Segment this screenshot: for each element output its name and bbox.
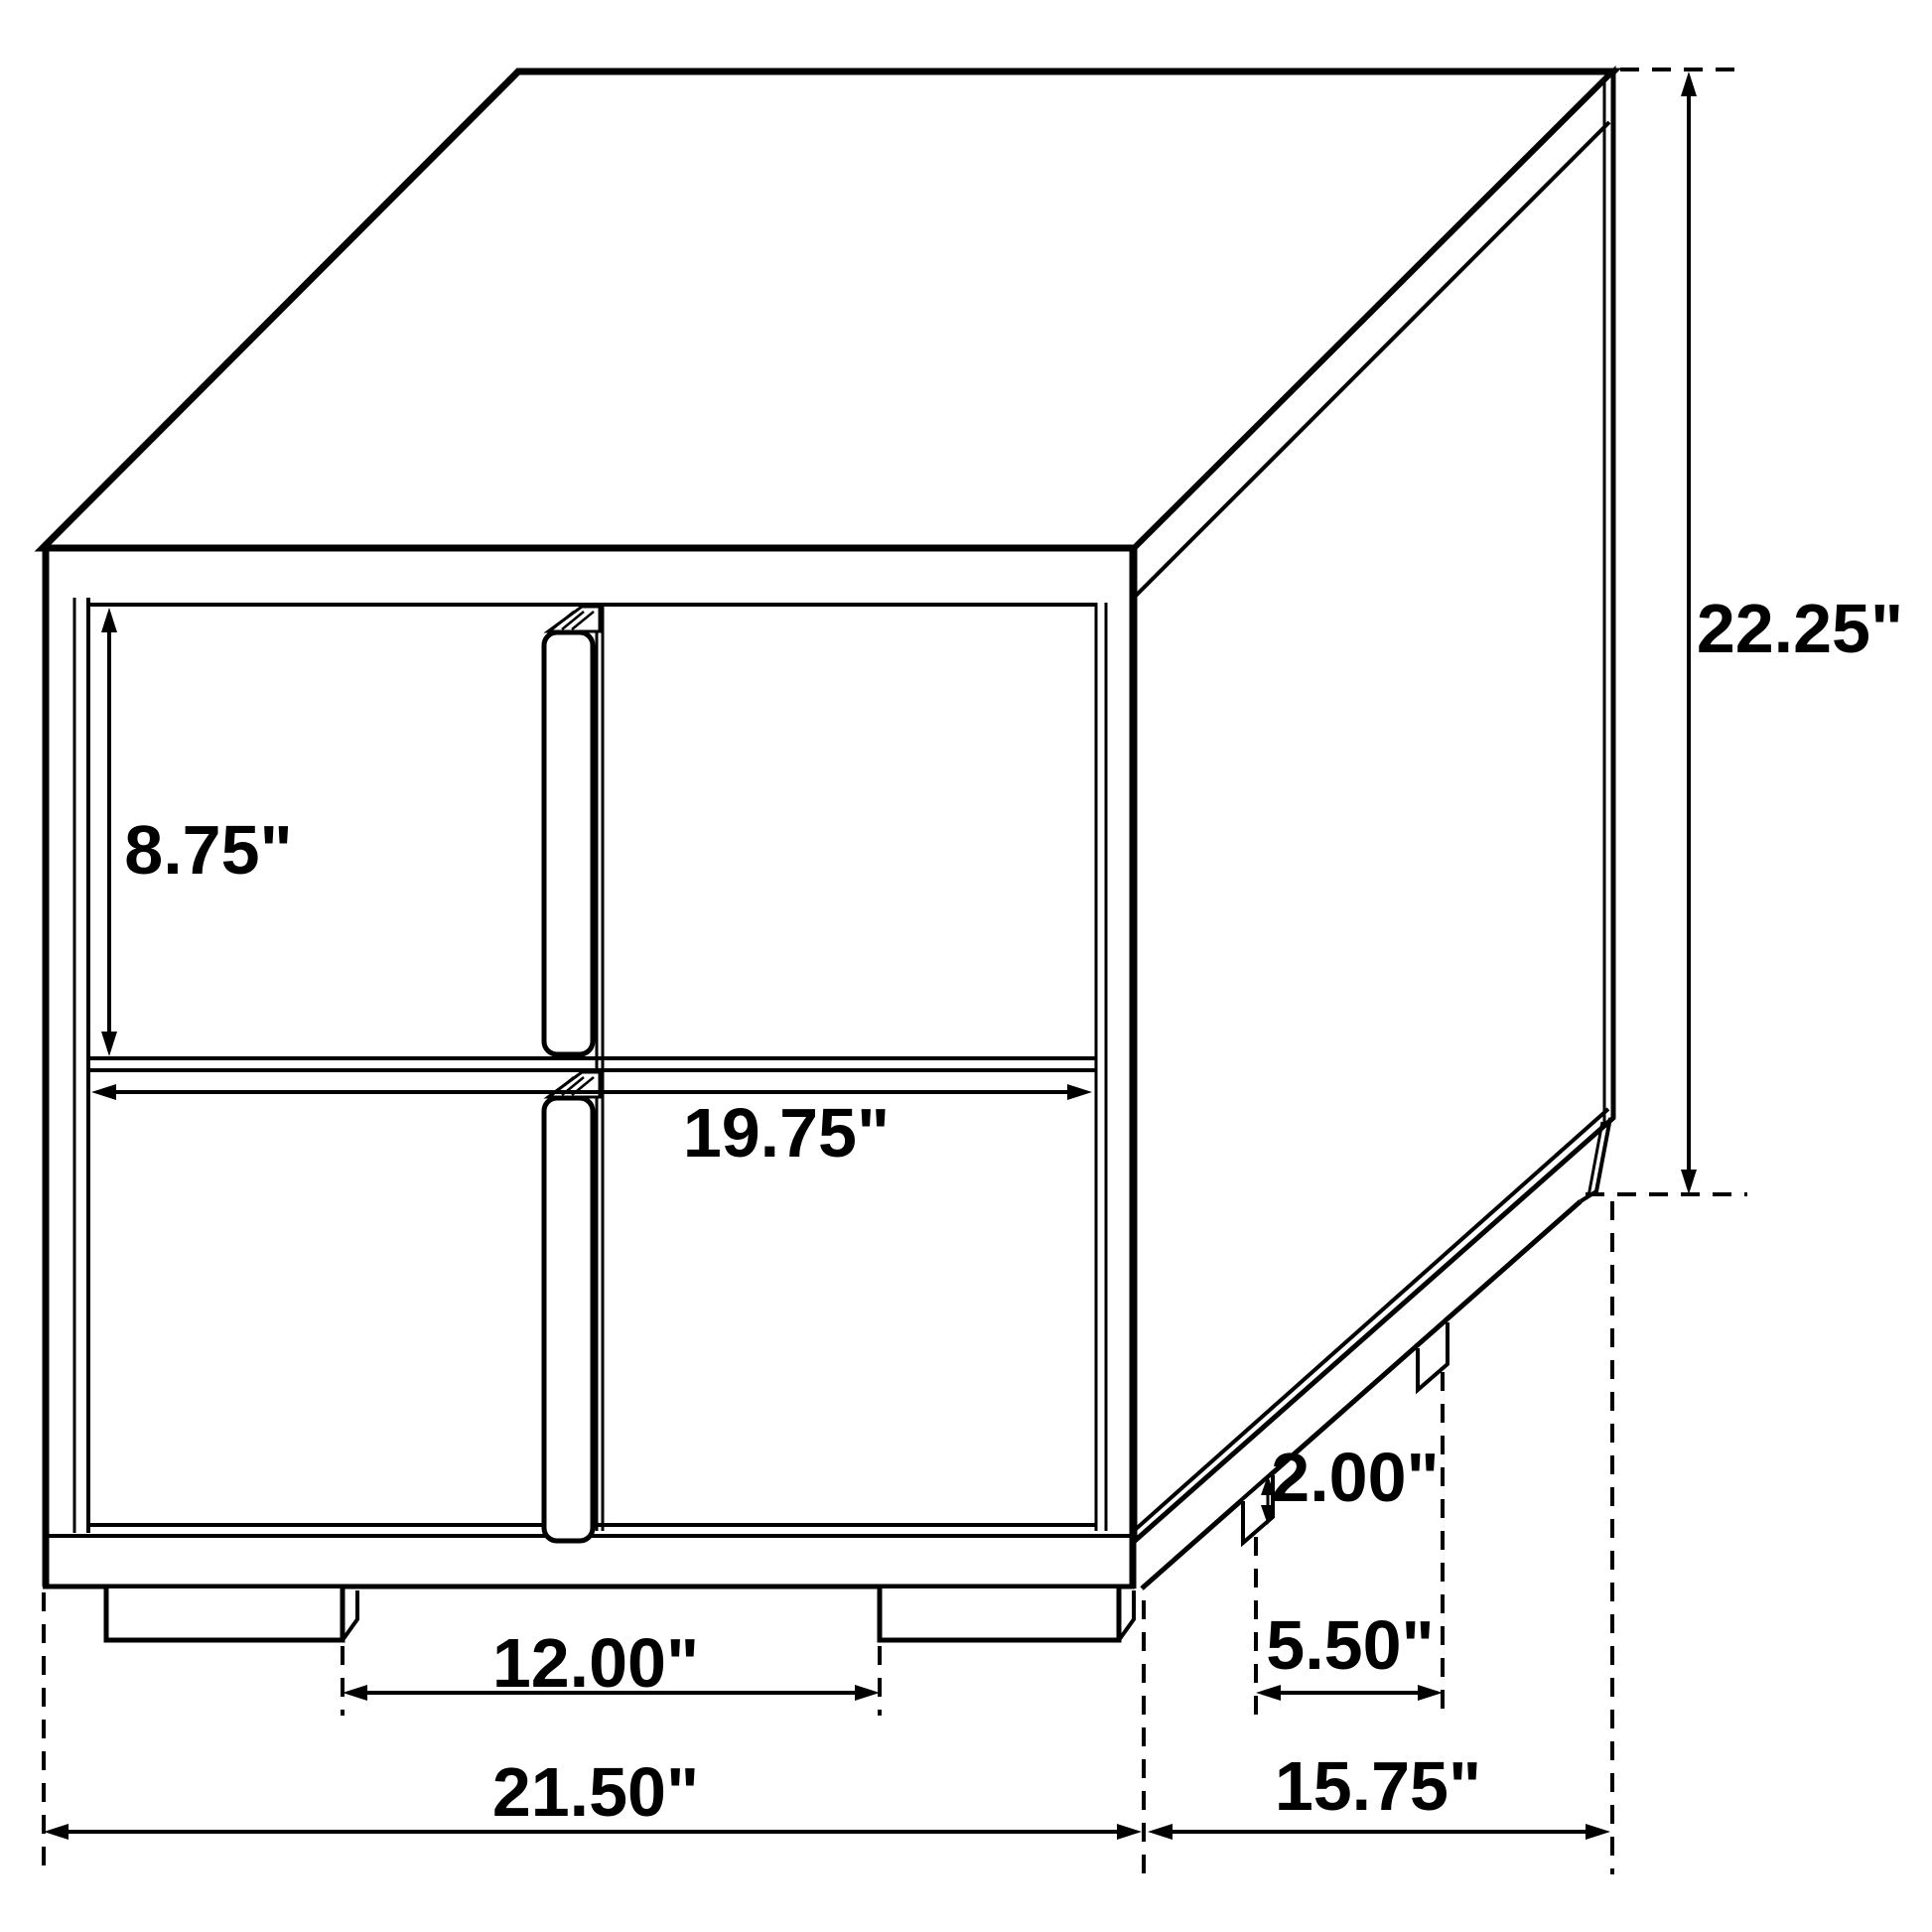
handle-top-bar	[544, 632, 593, 1054]
arrowhead-left	[1148, 1824, 1173, 1840]
dim-overall-height-label: 22.25"	[1697, 590, 1903, 667]
dim-drawer-front-height-label: 8.75"	[124, 811, 292, 889]
drawer-handle-bottom	[544, 1072, 600, 1541]
dim-front-feet-gap-label: 12.00"	[492, 1624, 699, 1702]
dim-foot-height-label: 2.00"	[1271, 1439, 1439, 1516]
drawer-handle-top	[544, 607, 600, 1054]
arrowhead-right	[1117, 1824, 1142, 1840]
dim-foot-height: 2.00"	[1261, 1439, 1440, 1525]
arrowhead-right	[1418, 1685, 1443, 1701]
diagram-canvas: 8.75" 19.75" 22.25" 2.00" 5.50"	[0, 0, 1932, 1932]
arrowhead-up	[1681, 71, 1697, 96]
front-foot-right	[880, 1588, 1119, 1640]
dim-opening-width-label: 19.75"	[683, 1094, 890, 1172]
dim-side-feet-gap-label: 5.50"	[1266, 1606, 1434, 1684]
dim-overall-width-label: 21.50"	[492, 1753, 699, 1831]
dim-overall-height: 22.25"	[1586, 69, 1903, 1194]
dim-overall-depth-label: 15.75"	[1275, 1747, 1481, 1825]
dim-side-feet-gap: 5.50"	[1256, 1372, 1443, 1716]
arrowhead-down	[1681, 1170, 1697, 1194]
arrowhead-left	[44, 1824, 69, 1840]
handle-bottom-bar	[544, 1098, 593, 1541]
arrowhead-left	[343, 1685, 367, 1701]
arrowhead-right	[855, 1685, 880, 1701]
dim-front-feet-gap: 12.00"	[343, 1624, 880, 1716]
front-foot-left	[106, 1588, 343, 1640]
arrowhead-left	[1256, 1685, 1281, 1701]
arrowhead-right	[1586, 1824, 1610, 1840]
furniture-dimension-diagram: 8.75" 19.75" 22.25" 2.00" 5.50"	[0, 0, 1932, 1932]
